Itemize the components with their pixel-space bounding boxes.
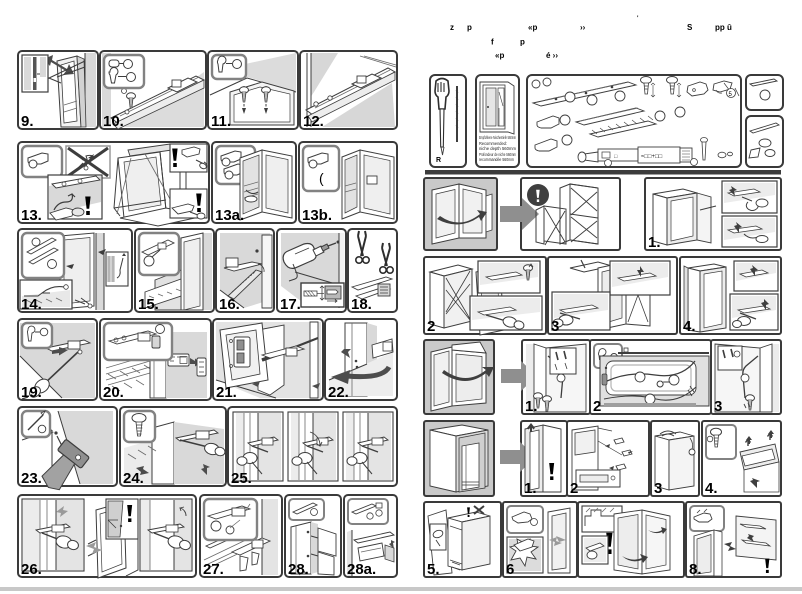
svg-text:≈□□+□□: ≈□□+□□ (641, 154, 663, 160)
svg-text:19.: 19. (21, 384, 42, 401)
svg-text:10.: 10. (103, 113, 124, 130)
svg-text:«p: «p (495, 51, 504, 60)
svg-text:27.: 27. (203, 561, 224, 578)
svg-text:20.: 20. (103, 384, 124, 401)
svg-text:é ››: é ›› (546, 51, 558, 60)
svg-text:21.: 21. (216, 384, 237, 401)
svg-text:13.: 13. (21, 207, 42, 224)
svg-text:13a.: 13a. (215, 207, 244, 224)
svg-text:17.: 17. (280, 296, 301, 313)
svg-text:12.: 12. (303, 113, 324, 130)
svg-text:9.: 9. (21, 113, 34, 130)
svg-text:8.: 8. (689, 561, 702, 578)
svg-text:R: R (436, 157, 441, 164)
svg-text:18.: 18. (351, 296, 372, 313)
svg-text:f: f (491, 38, 494, 47)
svg-text:2: 2 (593, 398, 601, 415)
svg-text:2: 2 (427, 318, 435, 335)
svg-text:2: 2 (570, 480, 578, 497)
svg-text:22.: 22. (328, 384, 349, 401)
svg-text:24.: 24. (123, 470, 144, 487)
svg-text:11.: 11. (211, 113, 231, 130)
svg-text:recommandée 560mm: recommandée 560mm (479, 157, 514, 162)
svg-text:26.: 26. (21, 561, 42, 578)
svg-text:p: p (520, 38, 525, 47)
svg-text:«p: «p (528, 23, 537, 32)
svg-text:4.: 4. (705, 480, 718, 497)
svg-text:23.: 23. (21, 470, 42, 487)
svg-text:25.: 25. (231, 470, 252, 487)
svg-text:16.: 16. (219, 296, 240, 313)
svg-text:4.: 4. (683, 318, 696, 335)
svg-text:niche depth 560mm: niche depth 560mm (479, 146, 516, 151)
svg-text:3: 3 (551, 318, 559, 335)
svg-text:S: S (687, 23, 693, 32)
svg-text:p: p (467, 23, 472, 32)
svg-text:13b.: 13b. (302, 207, 332, 224)
svg-text:(: ( (319, 170, 324, 186)
svg-text:6: 6 (506, 561, 514, 578)
svg-text:28a.: 28a. (347, 561, 376, 578)
svg-text:15.: 15. (138, 296, 159, 313)
svg-text:3: 3 (714, 398, 722, 415)
svg-text:››: ›› (580, 23, 586, 32)
svg-text:3: 3 (654, 480, 662, 497)
svg-text:Empfohlene Nischentiefe 560mm: Empfohlene Nischentiefe 560mm (479, 135, 516, 140)
svg-text:pp û: pp û (715, 23, 732, 32)
svg-text:5.: 5. (427, 561, 440, 578)
svg-text:1.: 1. (524, 480, 537, 497)
svg-text:1.: 1. (525, 398, 538, 415)
svg-text:14.: 14. (21, 296, 42, 313)
svg-text:1.: 1. (648, 234, 661, 251)
svg-text:z: z (450, 23, 454, 32)
svg-text:28.: 28. (288, 561, 309, 578)
